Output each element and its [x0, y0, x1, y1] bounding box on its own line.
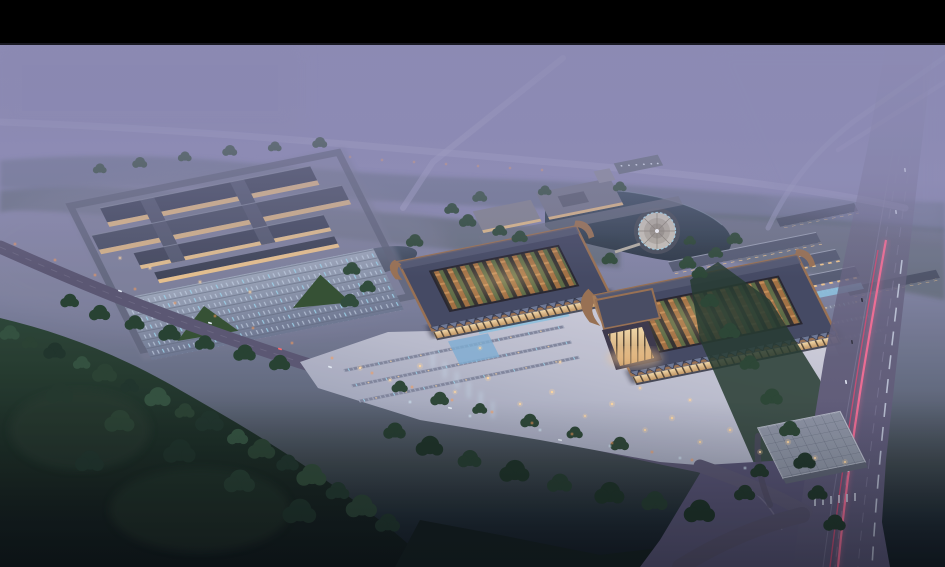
top-letterbox-bar: [0, 0, 945, 43]
color-cast: [0, 43, 945, 567]
rendering-canvas: [0, 0, 945, 567]
letterbox-edge: [0, 43, 945, 45]
architectural-rendering: [0, 0, 945, 567]
